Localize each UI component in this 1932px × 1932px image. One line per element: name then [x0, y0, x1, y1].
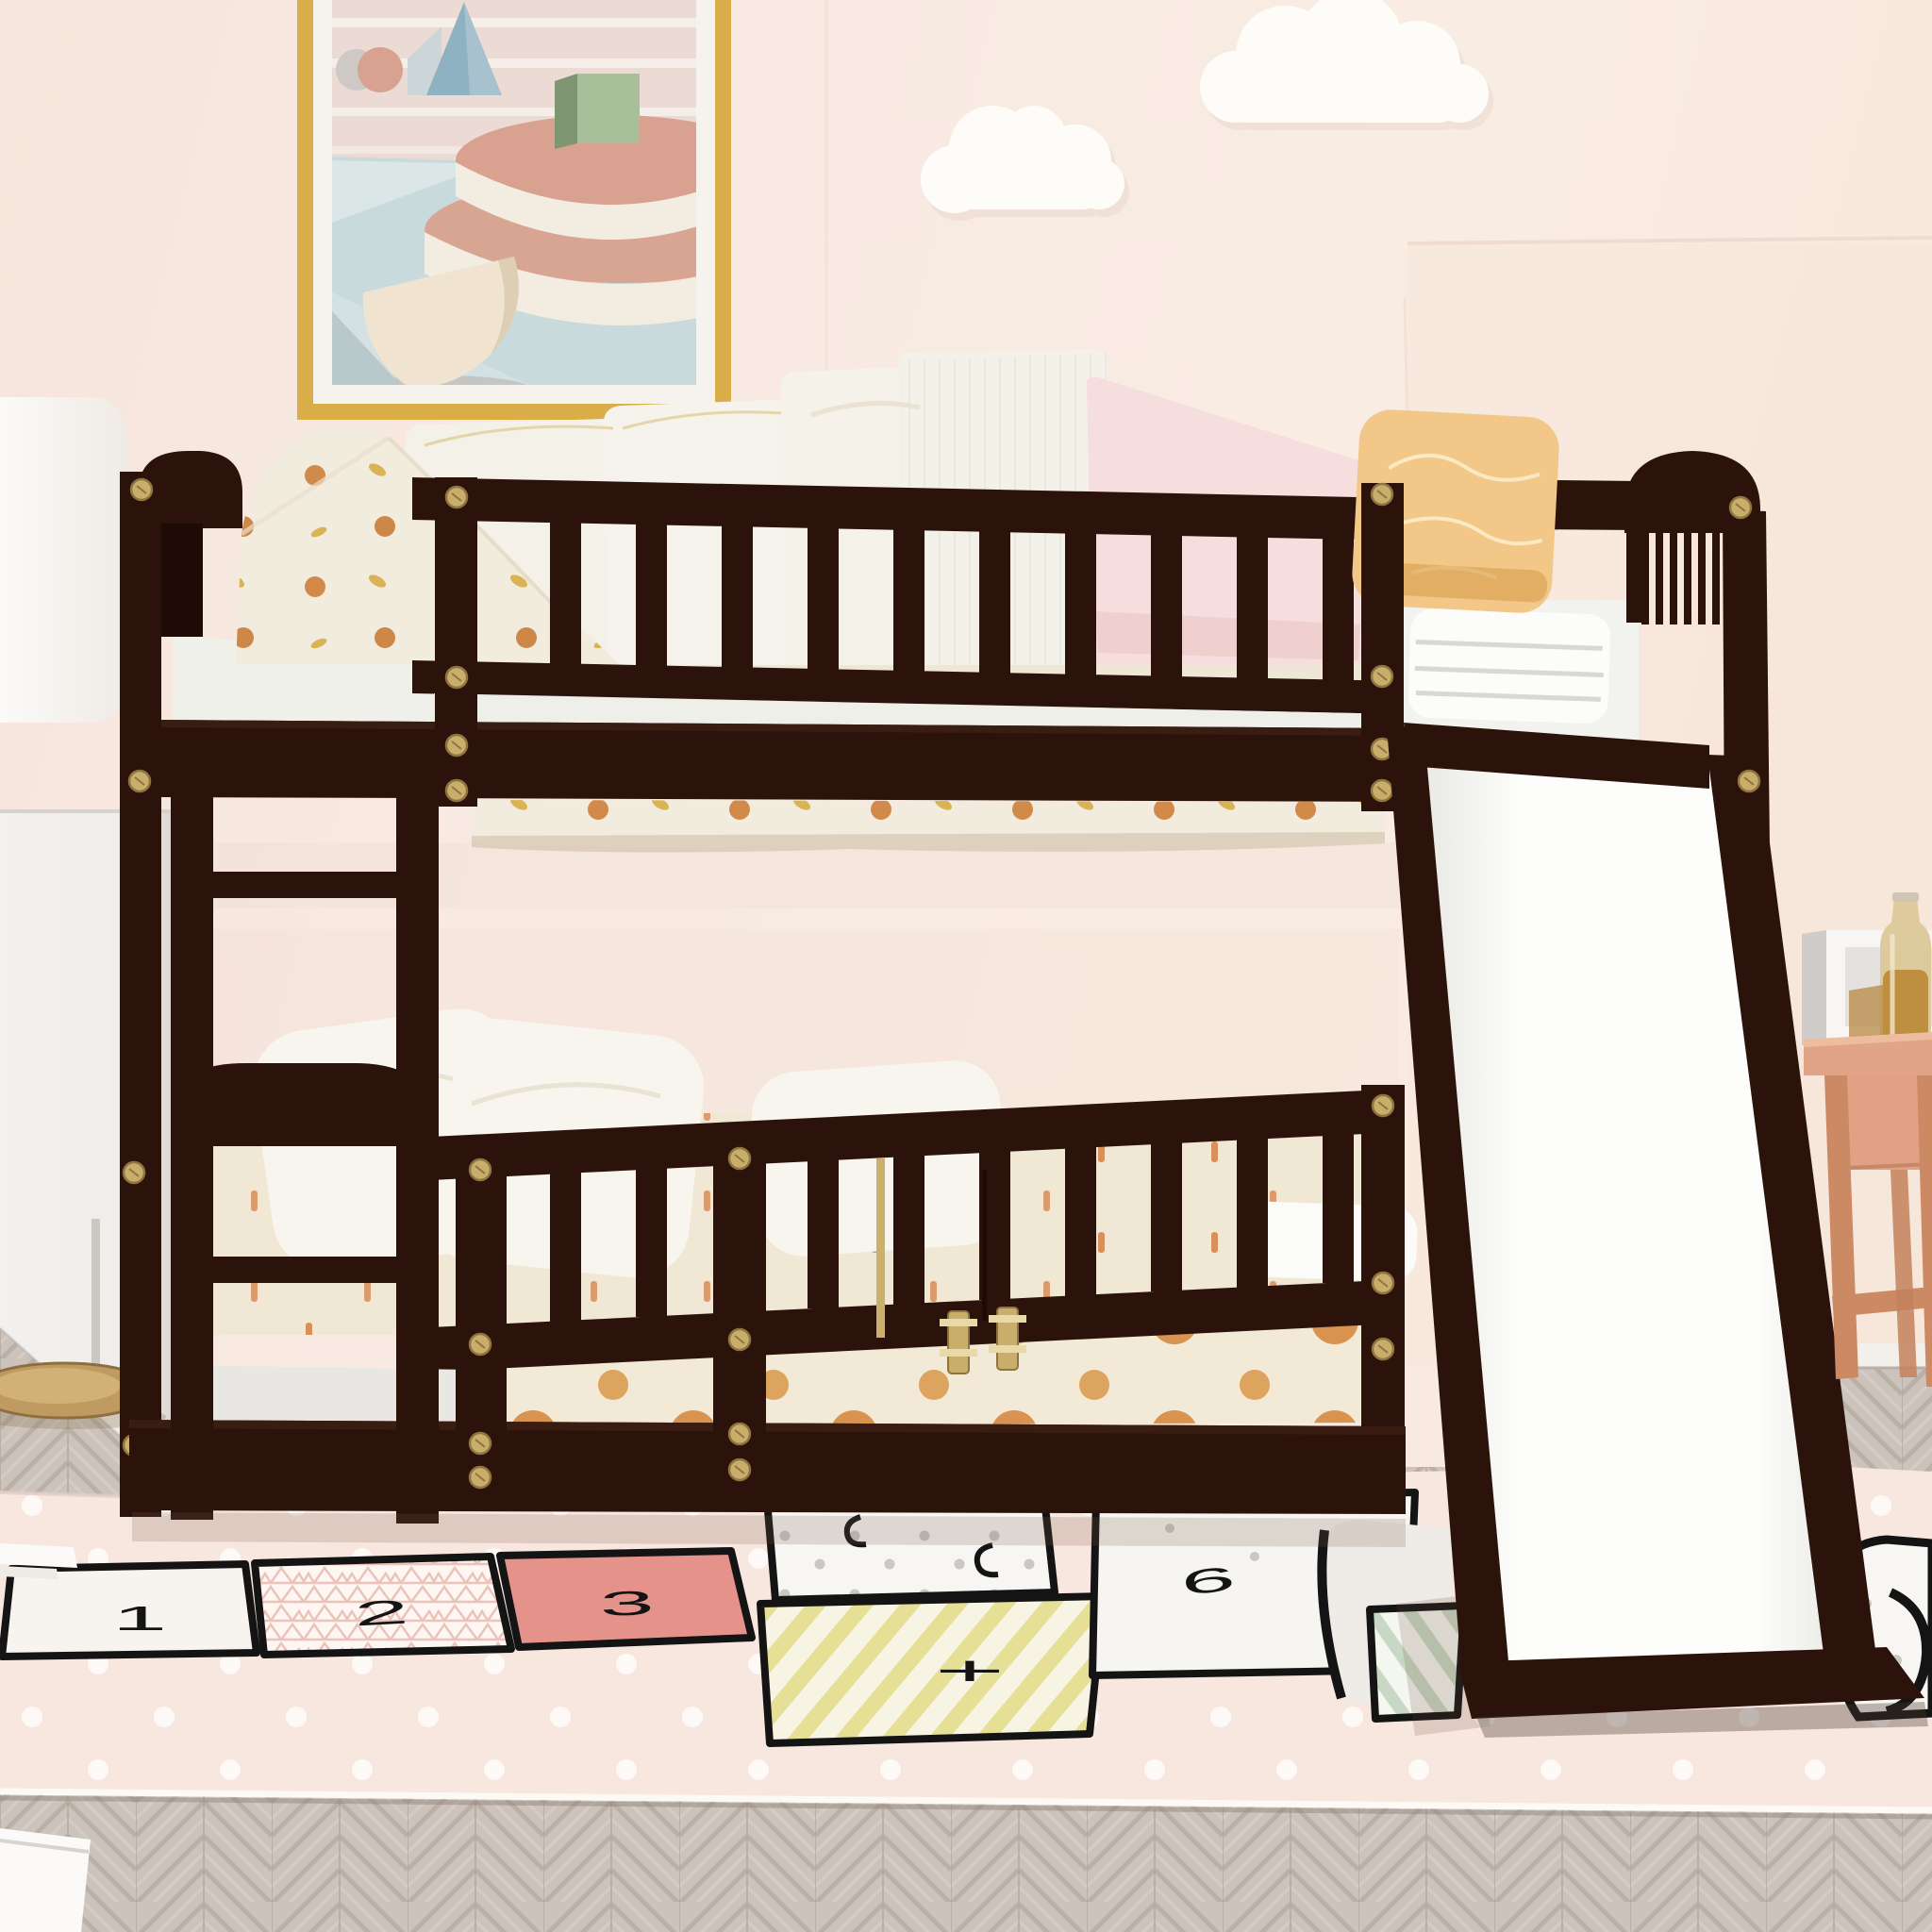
svg-text:+: +	[935, 1648, 1006, 1694]
svg-text:3: 3	[599, 1583, 655, 1624]
svg-text:6: 6	[1179, 1558, 1238, 1602]
svg-text:1: 1	[112, 1599, 167, 1638]
svg-text:2: 2	[353, 1592, 409, 1634]
